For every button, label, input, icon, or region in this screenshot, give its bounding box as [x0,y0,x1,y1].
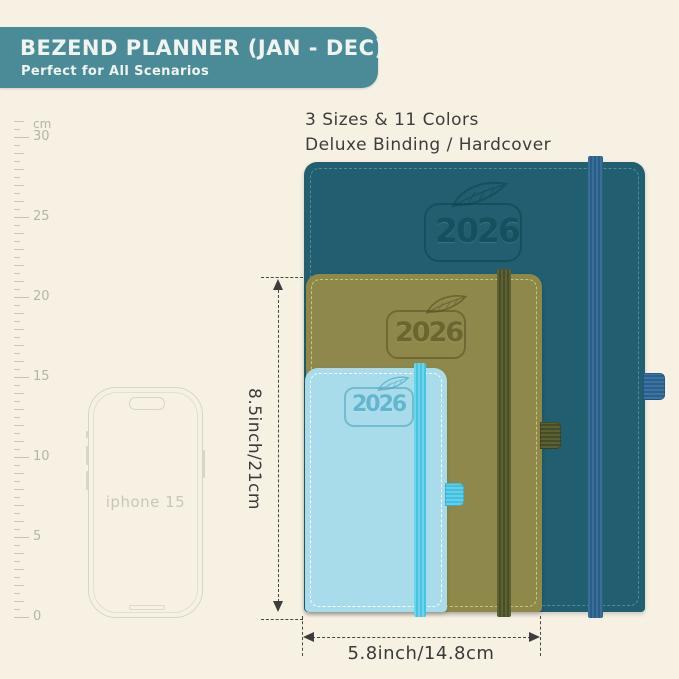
ruler-tick [14,617,29,618]
ruler-tick [14,537,29,538]
ruler-tick [14,353,20,354]
width-dimension-line [312,637,531,638]
ruler-tick [14,201,24,202]
ruler-label: 0 [33,609,41,624]
arrow-up-icon [273,279,283,290]
pen-loop [540,422,561,449]
ruler-tick [14,489,24,490]
ruler-tick [14,561,20,562]
height-dimension-line [278,290,279,602]
product-size-diagram: BEZEND PLANNER (JAN - DEC) Perfect for A… [0,0,679,679]
ruler-tick [14,233,24,234]
phone-volume-down-button [86,471,88,490]
ruler-tick [14,449,20,450]
sizes-colors-text: 3 Sizes & 11 Colors [305,110,479,130]
phone-dynamic-island [129,397,165,410]
ruler-tick [14,521,24,522]
ruler-tick [14,329,24,330]
phone-mute-button [86,431,88,438]
ruler-tick [14,241,20,242]
ruler-tick [14,545,20,546]
year-emboss: 2026 [435,211,519,250]
ruler-label: 25 [33,209,50,224]
banner-subtitle: Perfect for All Scenarios [21,64,209,79]
ruler-tick [14,137,29,138]
ruler-tick [14,577,20,578]
ruler-tick [14,377,29,378]
ruler-tick [14,145,20,146]
elastic-band [588,156,603,618]
ruler-tick [14,481,20,482]
ruler-tick [14,401,20,402]
ruler-tick [14,345,24,346]
ruler-tick [14,313,24,314]
ruler-tick [14,177,20,178]
ruler-tick [14,169,24,170]
dimension-guide [261,619,303,620]
ruler-tick [14,257,20,258]
arrow-right-icon [529,632,540,642]
ruler-tick [14,393,24,394]
ruler-tick [14,529,20,530]
ruler-tick [14,553,24,554]
ruler-tick [14,609,20,610]
ruler-tick [14,273,20,274]
ruler-tick [14,513,20,514]
ruler-tick [14,161,20,162]
ruler: cm 302520151050 [12,114,62,629]
elastic-band [414,363,426,617]
pen-loop [445,483,464,506]
ruler-tick [14,497,20,498]
ruler-tick [14,465,20,466]
ruler-tick [14,129,20,130]
width-dimension-label: 5.8inch/14.8cm [302,643,540,664]
pen-loop [643,373,665,400]
dimension-guide [540,616,541,656]
ruler-tick [14,569,24,570]
ruler-tick [14,417,20,418]
binding-text: Deluxe Binding / Hardcover [305,135,551,155]
ruler-tick [14,321,20,322]
ruler-tick [14,441,24,442]
ruler-tick [14,297,29,298]
ruler-label: 20 [33,289,50,304]
ruler-tick [14,361,24,362]
ruler-tick [14,289,20,290]
banner-title: BEZEND PLANNER (JAN - DEC) [20,36,385,60]
ruler-tick [14,433,20,434]
arrow-left-icon [303,632,314,642]
ruler-tick [14,337,20,338]
elastic-band [497,269,511,617]
planner-small: 2026 [305,368,447,612]
arrow-down-icon [273,601,283,612]
ruler-tick [14,425,24,426]
ruler-tick [14,225,20,226]
ruler-tick [14,505,24,506]
ruler-label: 15 [33,369,50,384]
phone-label: iphone 15 [89,493,202,511]
ruler-tick [14,121,24,122]
ruler-tick [14,265,24,266]
year-emboss: 2026 [395,317,462,348]
ruler-tick [14,473,24,474]
ruler-tick [14,593,20,594]
ruler-label: 30 [33,129,50,144]
phone-home-bar [129,605,165,610]
height-dimension-label: 8.5inch/21cm [244,388,264,510]
ruler-tick [14,281,24,282]
ruler-tick [14,601,24,602]
ruler-tick [14,249,24,250]
year-emboss: 2026 [352,392,405,417]
ruler-tick [14,153,24,154]
ruler-label: 10 [33,449,50,464]
dimension-guide [261,277,303,278]
phone-outline: iphone 15 [88,387,203,618]
ruler-tick [14,217,29,218]
ruler-tick [14,305,20,306]
brand-banner: BEZEND PLANNER (JAN - DEC) Perfect for A… [0,27,378,88]
ruler-tick [14,585,24,586]
ruler-tick [14,369,20,370]
ruler-tick [14,209,20,210]
ruler-tick [14,385,20,386]
phone-power-button [203,450,205,478]
phone-volume-up-button [86,446,88,465]
ruler-tick [14,457,29,458]
ruler-label: 5 [33,529,41,544]
ruler-tick [14,193,20,194]
ruler-tick [14,409,24,410]
ruler-tick [14,185,24,186]
